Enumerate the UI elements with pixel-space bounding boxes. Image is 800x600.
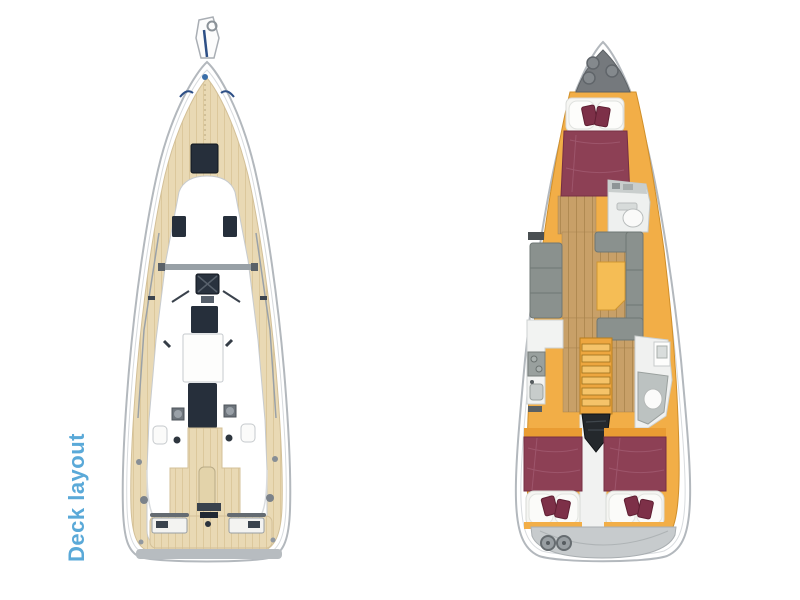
faucet-icon [530, 380, 534, 384]
coaming-locker [241, 424, 255, 442]
cockpit-winch-icon [266, 494, 274, 502]
coachroof-winch-icon [224, 405, 236, 417]
aft-berth-port [524, 428, 582, 529]
saloon-hatch [191, 306, 218, 333]
cabin-layout-figure: 3 cabin layout [400, 0, 800, 600]
coachroof-winch-icon [172, 408, 184, 420]
fore-hatch [191, 144, 218, 173]
halyard-clutch [226, 435, 233, 442]
rope-coil-icon [587, 57, 599, 69]
toilet-icon [644, 389, 662, 409]
galley-stove [528, 352, 545, 376]
helm-station-port [150, 513, 189, 533]
halyard-clutch [174, 437, 181, 444]
coaming-locker [153, 426, 167, 444]
sink-icon [657, 346, 667, 358]
boat-layouts-page: Deck layout [0, 0, 800, 600]
companionway-steps [580, 338, 612, 414]
saloon-sofa-port [530, 243, 562, 318]
cockpit-winch-icon [136, 459, 142, 465]
galley-sink [530, 384, 543, 400]
aft-berth-starboard [604, 428, 666, 529]
bow-fitting-icon [202, 74, 208, 80]
rope-coil-icon [583, 72, 595, 84]
steering-wheel-icon [227, 513, 266, 517]
cockpit-winch-icon [272, 456, 278, 462]
cockpit-winch-icon [140, 496, 148, 504]
corridor-floor [558, 196, 596, 234]
saloon-table [597, 262, 625, 310]
stern-cleat [139, 540, 144, 545]
deck-layout-diagram [0, 0, 400, 600]
cushion [594, 106, 610, 127]
deck-hatch [223, 216, 237, 237]
helm-station-starboard [227, 513, 266, 533]
deck-layout-figure: Deck layout [0, 0, 400, 600]
sprayhood-garage [183, 334, 223, 382]
stern-cleat [271, 538, 276, 543]
head-corridor-floor [612, 348, 635, 412]
rope-coil-icon [606, 65, 618, 77]
galley-floor [563, 348, 580, 412]
sideboard [528, 232, 544, 240]
forward-head [608, 180, 650, 232]
toilet-icon [623, 209, 643, 227]
chainplate [148, 296, 155, 300]
berth-blanket [604, 437, 666, 491]
companionway-hatch [188, 383, 217, 428]
mainsheet-traveler [158, 263, 258, 271]
steering-wheel-icon [150, 513, 189, 517]
bowsprit [196, 17, 219, 58]
sink-icon [612, 183, 620, 189]
chainplate [260, 296, 267, 300]
cabin-layout-diagram [400, 0, 800, 600]
deck-hatch [172, 216, 186, 237]
swim-platform-edge [136, 549, 282, 559]
aft-head [635, 336, 672, 428]
